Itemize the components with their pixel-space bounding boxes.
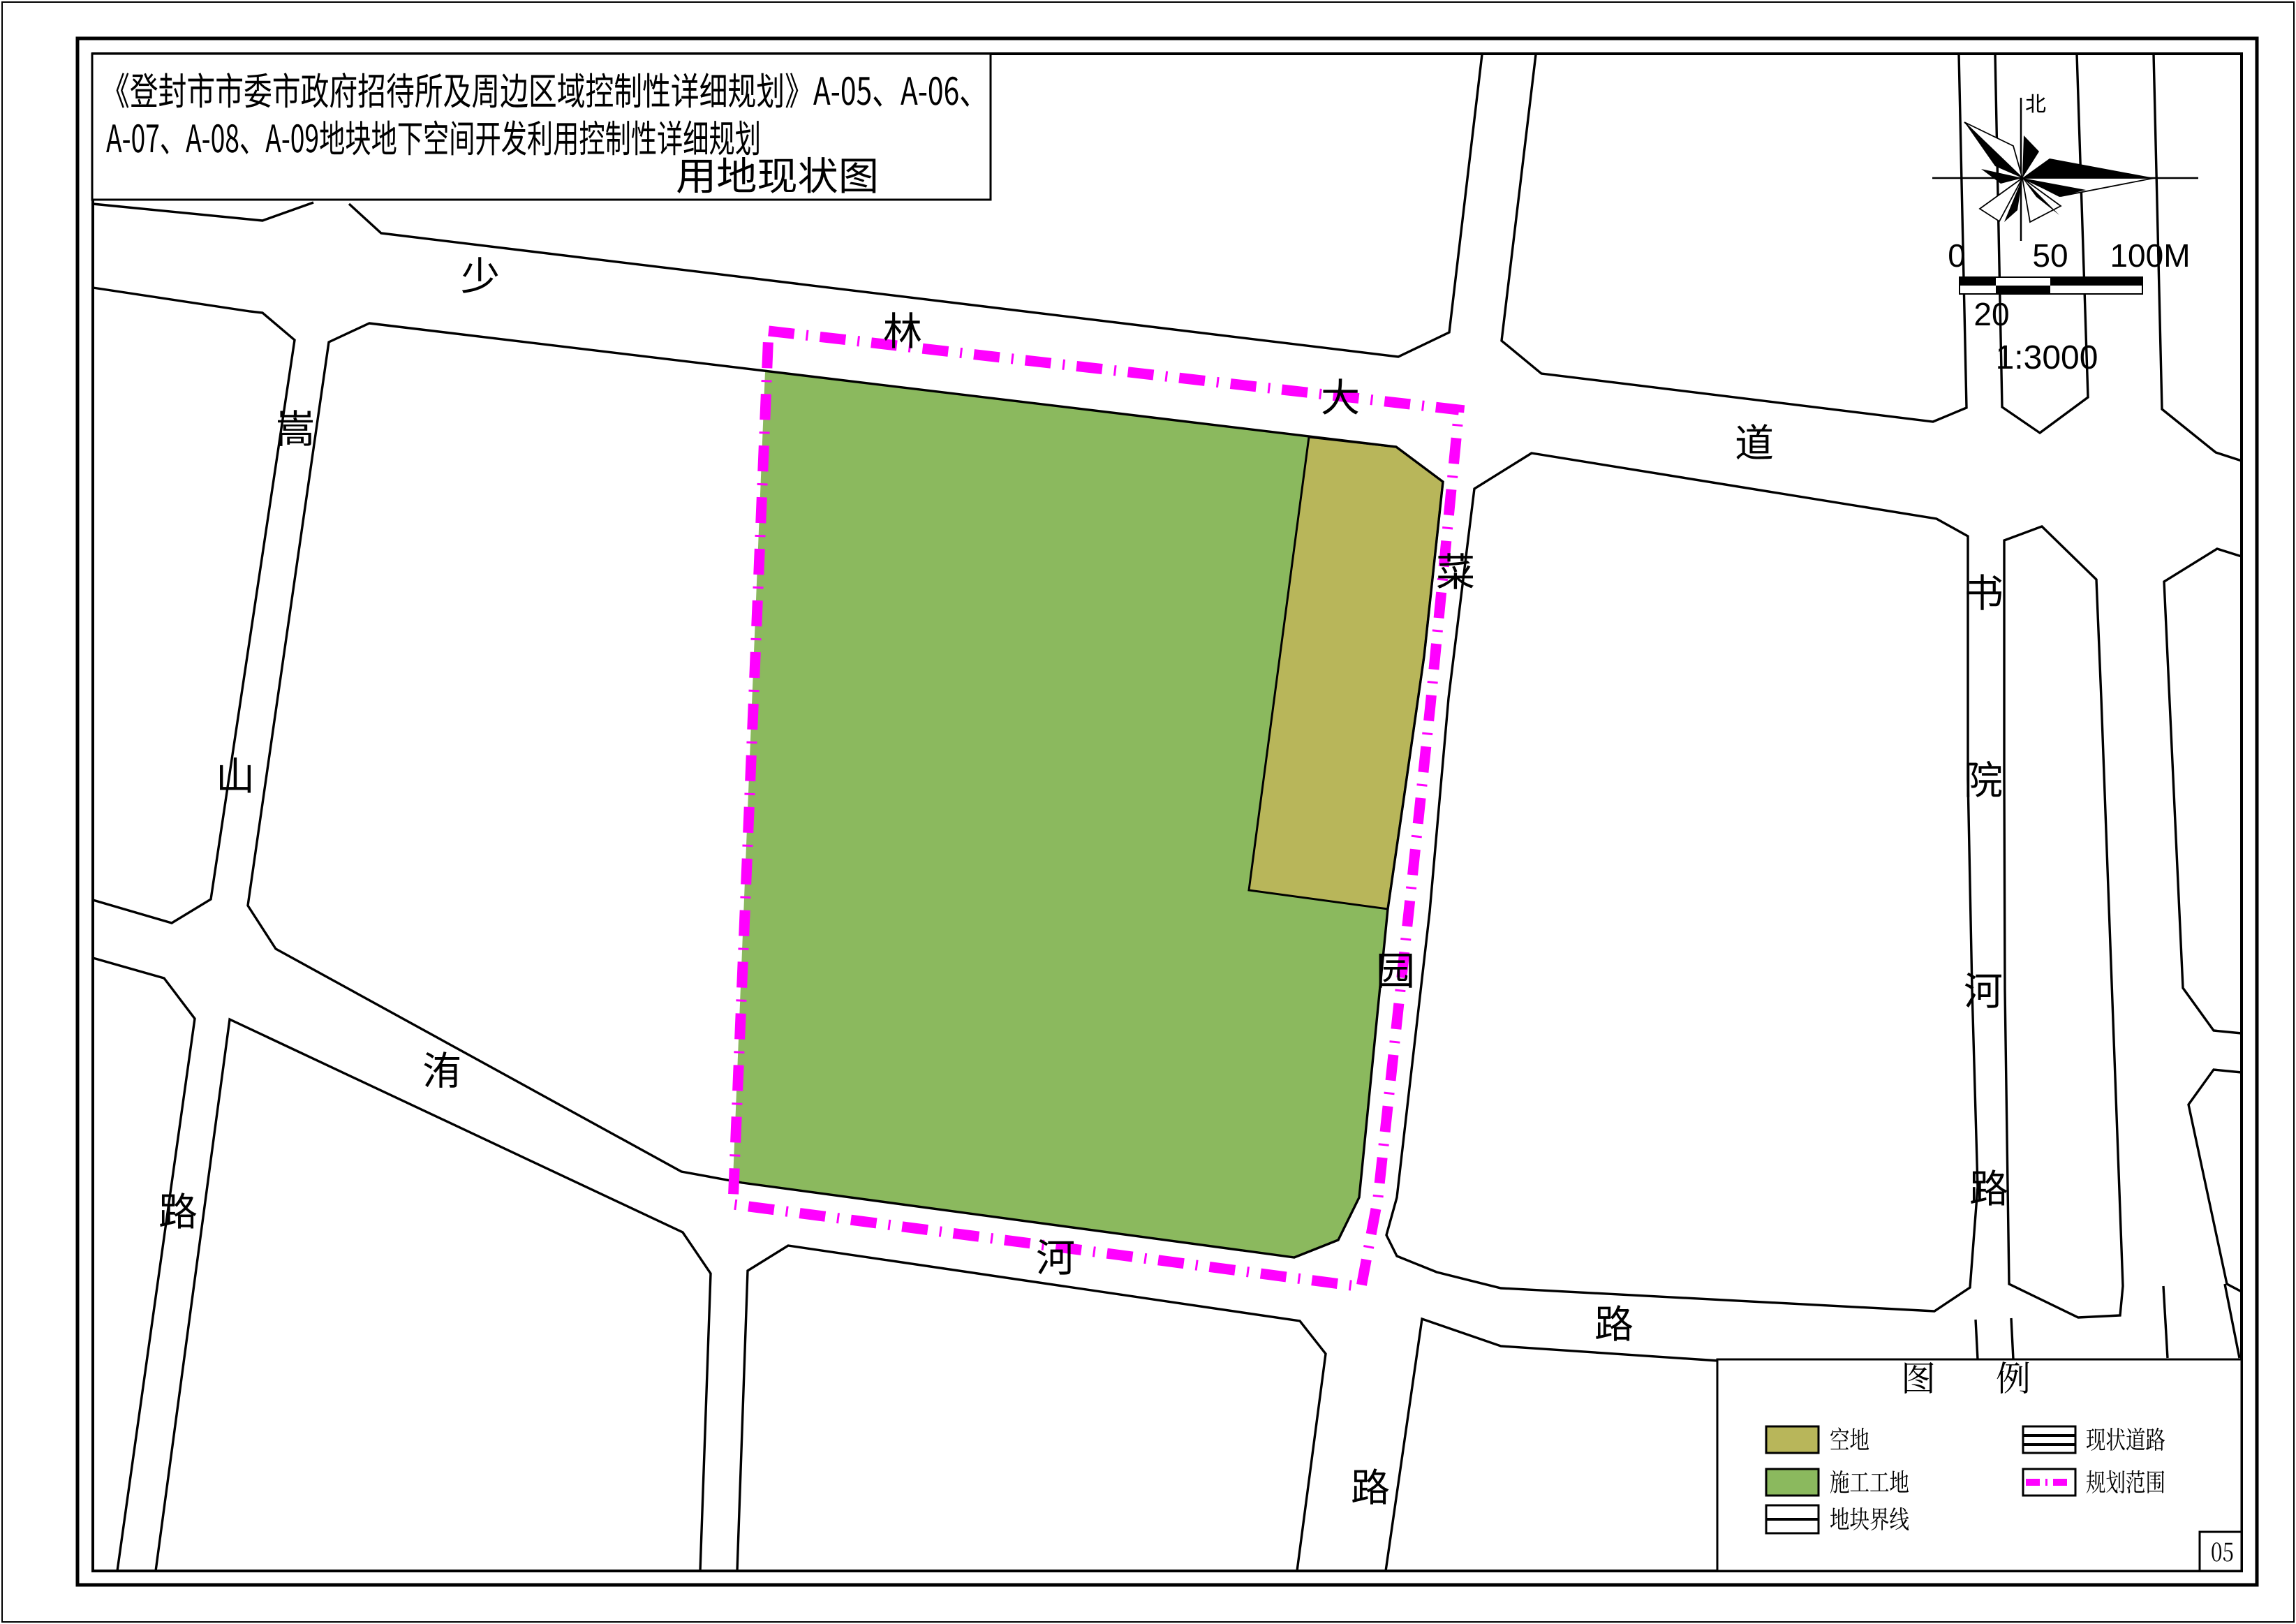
svg-text:0: 0	[1948, 237, 1966, 274]
svg-text:20: 20	[1973, 296, 2009, 332]
svg-text:100M: 100M	[2110, 237, 2190, 274]
svg-text:50: 50	[2032, 237, 2068, 274]
svg-text:1:3000: 1:3000	[1996, 339, 2098, 376]
